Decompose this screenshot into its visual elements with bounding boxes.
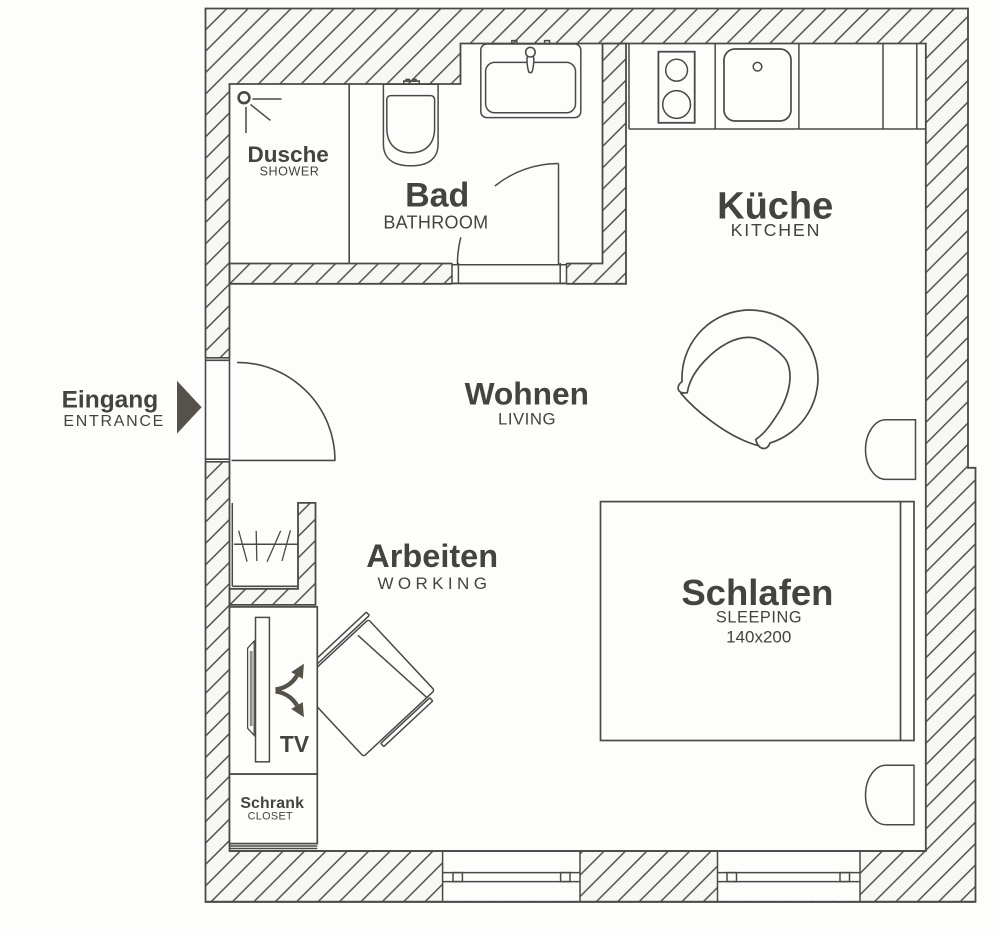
svg-text:Arbeiten: Arbeiten <box>366 538 498 574</box>
svg-text:SHOWER: SHOWER <box>260 164 320 178</box>
svg-text:140x200: 140x200 <box>726 628 791 647</box>
svg-text:Schlafen: Schlafen <box>681 572 833 613</box>
svg-text:KITCHEN: KITCHEN <box>731 220 822 240</box>
svg-text:BATHROOM: BATHROOM <box>383 213 488 233</box>
svg-text:Bad: Bad <box>405 177 469 215</box>
svg-text:Eingang: Eingang <box>62 387 159 414</box>
svg-text:Dusche: Dusche <box>248 142 329 167</box>
svg-text:ENTRANCE: ENTRANCE <box>63 413 165 430</box>
svg-text:Schrank: Schrank <box>240 795 304 812</box>
svg-text:TV: TV <box>280 731 310 757</box>
svg-text:SLEEPING: SLEEPING <box>716 608 802 626</box>
svg-text:Wohnen: Wohnen <box>465 376 589 412</box>
svg-text:LIVING: LIVING <box>498 410 556 429</box>
svg-text:CLOSET: CLOSET <box>248 811 293 823</box>
svg-text:WORKING: WORKING <box>377 574 491 593</box>
